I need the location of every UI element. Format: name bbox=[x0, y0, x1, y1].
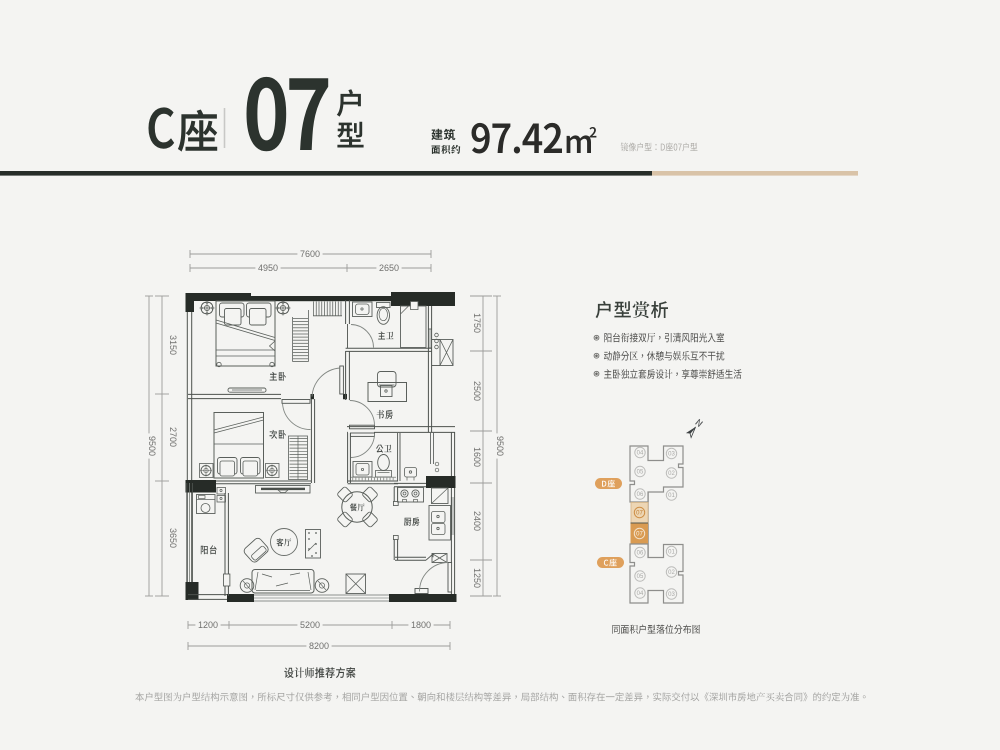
svg-text:2650: 2650 bbox=[379, 263, 399, 273]
svg-text:3150: 3150 bbox=[168, 335, 178, 355]
svg-text:9500: 9500 bbox=[147, 436, 157, 456]
svg-text:5200: 5200 bbox=[300, 620, 320, 630]
svg-text:04: 04 bbox=[637, 591, 644, 597]
svg-text:03: 03 bbox=[668, 452, 675, 458]
svg-text:1800: 1800 bbox=[411, 620, 431, 630]
svg-text:02: 02 bbox=[668, 471, 675, 477]
svg-text:1600: 1600 bbox=[472, 447, 482, 467]
svg-text:8200: 8200 bbox=[309, 641, 329, 651]
svg-text:05: 05 bbox=[637, 574, 644, 580]
svg-text:01: 01 bbox=[668, 493, 675, 499]
svg-text:03: 03 bbox=[668, 592, 675, 598]
svg-text:9500: 9500 bbox=[495, 436, 505, 456]
svg-text:4950: 4950 bbox=[258, 263, 278, 273]
svg-text:06: 06 bbox=[637, 492, 644, 498]
svg-text:2700: 2700 bbox=[168, 427, 178, 447]
svg-text:1750: 1750 bbox=[472, 313, 482, 333]
svg-text:06: 06 bbox=[637, 551, 644, 557]
svg-text:7600: 7600 bbox=[300, 249, 320, 259]
svg-text:2500: 2500 bbox=[472, 381, 482, 401]
svg-text:1200: 1200 bbox=[198, 620, 218, 630]
svg-text:07: 07 bbox=[636, 532, 643, 538]
svg-text:05: 05 bbox=[637, 470, 644, 476]
svg-text:01: 01 bbox=[668, 550, 675, 556]
svg-text:1250: 1250 bbox=[472, 568, 482, 588]
svg-text:3650: 3650 bbox=[168, 528, 178, 548]
svg-text:02: 02 bbox=[668, 570, 675, 576]
svg-text:04: 04 bbox=[637, 451, 644, 457]
svg-text:07: 07 bbox=[636, 511, 643, 517]
svg-text:2400: 2400 bbox=[472, 511, 482, 531]
